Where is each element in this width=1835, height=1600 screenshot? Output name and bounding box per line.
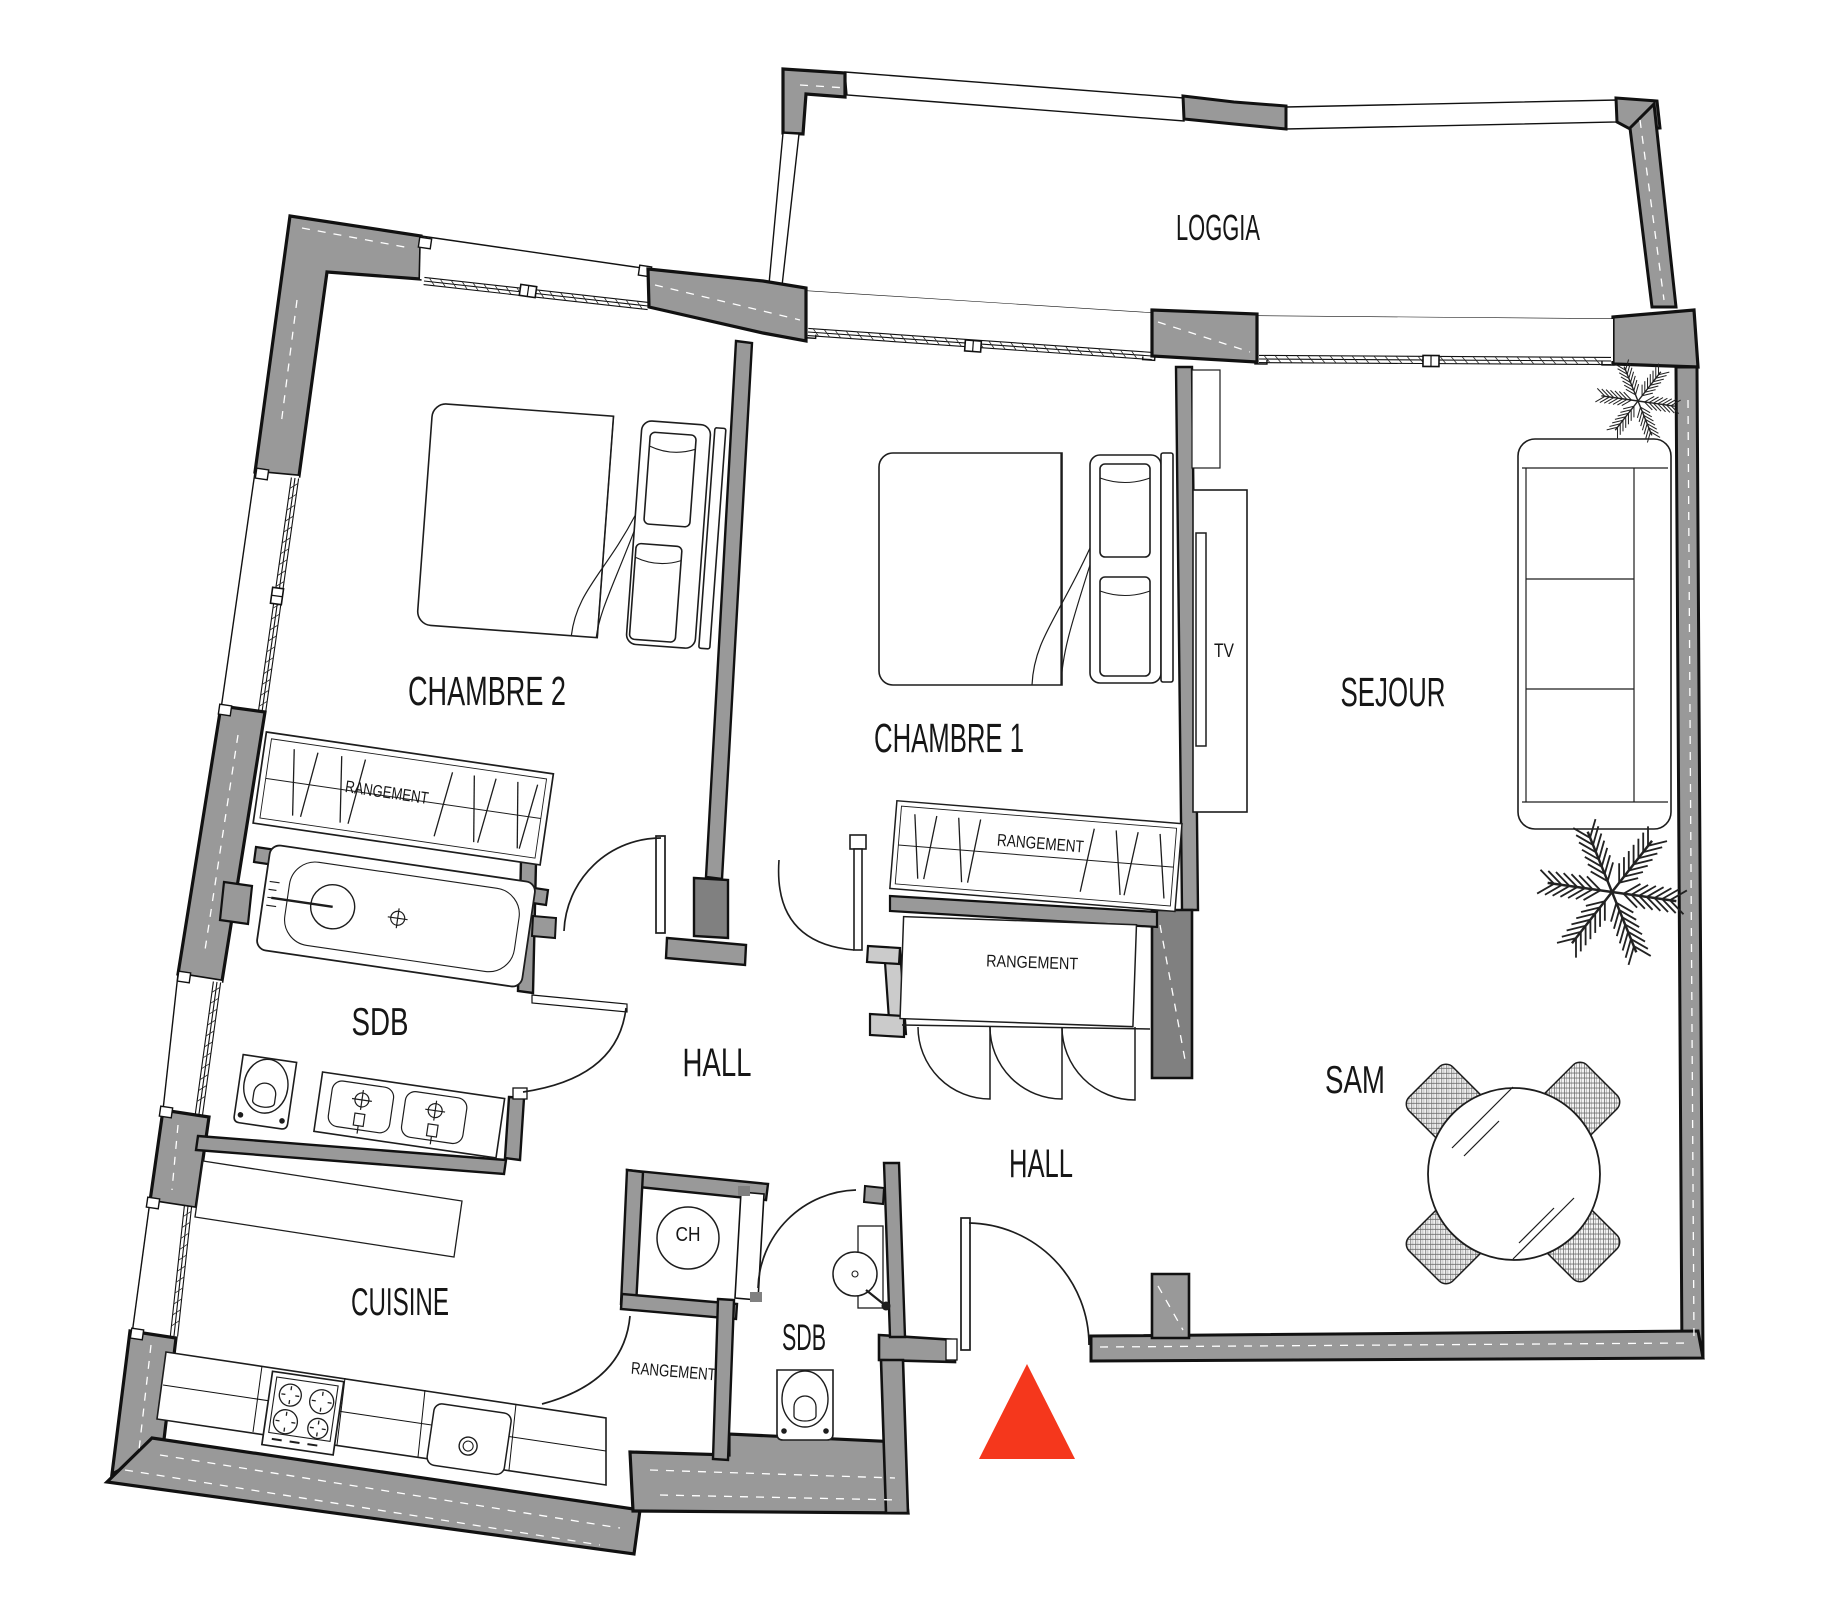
svg-text:SEJOUR: SEJOUR	[1341, 669, 1446, 715]
svg-text:SAM: SAM	[1325, 1059, 1385, 1102]
svg-text:CH: CH	[676, 1224, 701, 1246]
svg-text:TV: TV	[1214, 641, 1234, 662]
svg-text:RANGEMENT: RANGEMENT	[986, 951, 1079, 973]
svg-text:HALL: HALL	[1009, 1142, 1073, 1186]
svg-text:SDB: SDB	[782, 1317, 826, 1358]
svg-text:LOGGIA: LOGGIA	[1176, 207, 1260, 248]
svg-text:SDB: SDB	[352, 1001, 409, 1044]
svg-text:HALL: HALL	[683, 1041, 752, 1085]
svg-text:CUISINE: CUISINE	[351, 1281, 449, 1324]
svg-text:CHAMBRE 2: CHAMBRE 2	[408, 668, 566, 714]
svg-text:CHAMBRE 1: CHAMBRE 1	[874, 715, 1024, 761]
